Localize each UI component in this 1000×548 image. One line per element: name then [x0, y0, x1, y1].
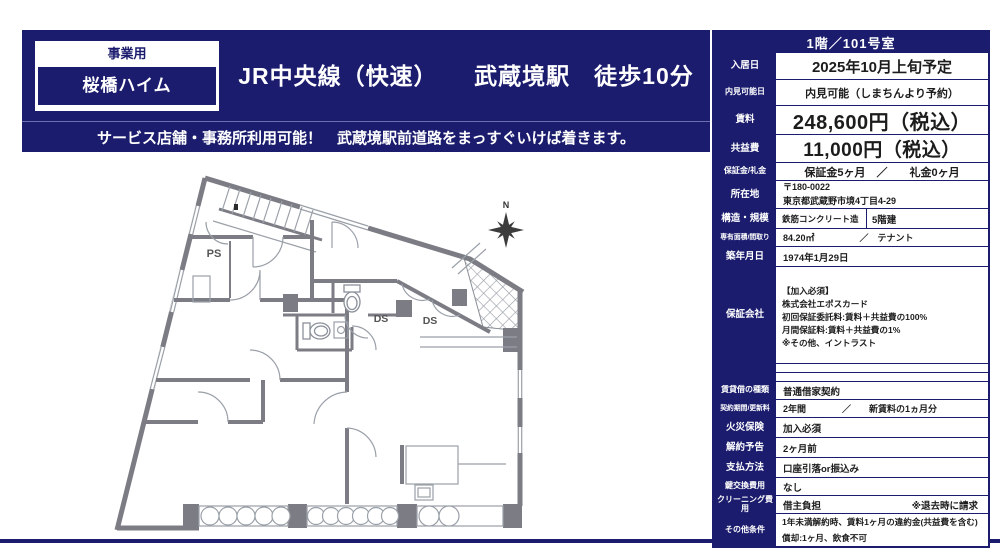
row-fire-insurance: 火災保険 加入必須: [714, 417, 988, 437]
compass-icon: N: [488, 200, 524, 248]
row-label: 専有面積/間取り: [714, 229, 776, 246]
row-value: 普通借家契約: [776, 382, 988, 399]
other-condition-1: 1年未満解約時、賃料1ヶ月の違約金(共益費を含む): [782, 517, 978, 527]
row-viewing: 内見可能日 内見可能（しまちんより予約）: [714, 79, 988, 105]
row-common-fee: 共益費 11,000円（税込）: [714, 134, 988, 162]
unit-title: 1階／101号室: [714, 32, 988, 52]
row-value: [776, 364, 988, 372]
spec-table: 1階／101号室 入居日 2025年10月上旬予定 内見可能日 内見可能（しまち…: [712, 30, 990, 548]
row-value: 加入必須: [776, 418, 988, 437]
row-structure: 構造・規模 鉄筋コンクリート造 5階建: [714, 208, 988, 228]
row-label: 構造・規模: [714, 209, 776, 228]
row-guarantor-company: 保証会社 【加入必須】 株式会社エポスカード 初回保証委託料:賃料＋共益費の10…: [714, 266, 988, 363]
structure-value: 鉄筋コンクリート造: [776, 209, 867, 228]
row-label: その他条件: [714, 514, 776, 546]
row-label: 契約期間/更新料: [714, 400, 776, 417]
scale-value: 5階建: [867, 209, 988, 228]
header: 事業用 桜橋ハイム JR中央線（快速） 武蔵境駅 徒歩10分 サービス店舗・事務…: [22, 30, 710, 152]
row-key-exchange: 鍵交換費用 なし: [714, 477, 988, 495]
row-label: 共益費: [714, 135, 776, 162]
row-move-in-date: 入居日 2025年10月上旬予定: [714, 52, 988, 79]
row-label: 解約予告: [714, 438, 776, 457]
row-label: 保証会社: [714, 267, 776, 363]
row-label: 保証金/礼金: [714, 163, 776, 180]
row-value: 1年未満解約時、賃料1ヶ月の違約金(共益費を含む) 償却:1ヶ月、飲食不可: [776, 514, 988, 546]
row-label: 入居日: [714, 53, 776, 79]
shopfront-bays: [199, 506, 503, 526]
row-cleaning-fee: クリーニング費用 借主負担 ※退去時に請求: [714, 495, 988, 513]
postal-code: 〒180-0022: [783, 181, 830, 194]
catch-copy: サービス店舗・事務所利用可能！ 武蔵境駅前道路をまっすぐいけば着きます。: [22, 126, 710, 152]
row-lease-type: 賃貸借の種類 普通借家契約: [714, 381, 988, 399]
row-built-date: 築年月日 1974年1月29日: [714, 246, 988, 266]
row-label: 内見可能日: [714, 80, 776, 105]
row-value: 2ヶ月前: [776, 438, 988, 457]
cleaning-note: ※退去時に請求: [912, 498, 978, 512]
row-label: 賃料: [714, 106, 776, 134]
row-other-conditions: その他条件 1年未満解約時、賃料1ヶ月の違約金(共益費を含む) 償却:1ヶ月、飲…: [714, 513, 988, 546]
building-badge: 事業用 桜橋ハイム: [35, 41, 219, 111]
floorplan-drawing: N PS DS DS: [95, 162, 565, 544]
row-value: 【加入必須】 株式会社エポスカード 初回保証委託料:賃料＋共益費の100% 月間…: [776, 267, 988, 363]
row-label: クリーニング費用: [714, 496, 776, 513]
row-payment-method: 支払方法 口座引落or振込み: [714, 457, 988, 477]
ds-label-1: DS: [374, 313, 389, 325]
property-flyer: 事業用 桜橋ハイム JR中央線（快速） 武蔵境駅 徒歩10分 サービス店舗・事務…: [0, 0, 1000, 548]
row-rent: 賃料 248,600円（税込）: [714, 105, 988, 134]
row-address: 所在地 〒180-0022 東京都武蔵野市境4丁目4-29: [714, 180, 988, 208]
row-value: [776, 373, 988, 381]
building-name: 桜橋ハイム: [38, 67, 216, 105]
row-value: 内見可能（しまちんより予約）: [776, 80, 988, 105]
header-divider: [22, 121, 710, 122]
cleaning-value: 借主負担: [783, 498, 821, 512]
row-contract-term: 契約期間/更新料 2年間 ／ 新賃料の1ヵ月分: [714, 399, 988, 417]
other-condition-2: 償却:1ヶ月、飲食不可: [782, 533, 867, 543]
row-value: 2年間 ／ 新賃料の1ヵ月分: [776, 400, 988, 417]
row-label: 所在地: [714, 181, 776, 208]
station-access-title: JR中央線（快速） 武蔵境駅 徒歩10分: [226, 56, 706, 96]
row-label: 鍵交換費用: [714, 478, 776, 495]
row-value: 借主負担 ※退去時に請求: [776, 496, 988, 513]
row-value: 口座引落or振込み: [776, 458, 988, 477]
row-value: なし: [776, 478, 988, 495]
row-value: 〒180-0022 東京都武蔵野市境4丁目4-29: [776, 181, 988, 208]
use-type-label: 事業用: [35, 41, 219, 67]
floor-area: [117, 178, 522, 528]
row-value: 84.20㎡ ／ テナント: [776, 229, 988, 246]
address-line: 東京都武蔵野市境4丁目4-29: [783, 195, 896, 208]
row-label: [714, 364, 776, 372]
ps-label: PS: [207, 248, 222, 260]
row-value: 1974年1月29日: [776, 247, 988, 266]
row-area-layout: 専有面積/間取り 84.20㎡ ／ テナント: [714, 228, 988, 246]
row-deposit-keymoney: 保証金/礼金 保証金5ヶ月 ／ 礼金0ヶ月: [714, 162, 988, 180]
row-label: 賃貸借の種類: [714, 382, 776, 399]
row-cancellation-notice: 解約予告 2ヶ月前: [714, 437, 988, 457]
row-value: 保証金5ヶ月 ／ 礼金0ヶ月: [776, 163, 988, 180]
row-spacer: [714, 372, 988, 381]
row-value: 248,600円（税込）: [776, 106, 988, 134]
row-label: 火災保険: [714, 418, 776, 437]
row-spacer: [714, 363, 988, 372]
row-label: 支払方法: [714, 458, 776, 477]
row-label: [714, 373, 776, 381]
row-value: 11,000円（税込）: [776, 135, 988, 162]
row-label: 築年月日: [714, 247, 776, 266]
row-value: 2025年10月上旬予定: [776, 53, 988, 79]
north-label: N: [503, 200, 510, 210]
ds-label-2: DS: [423, 315, 438, 327]
